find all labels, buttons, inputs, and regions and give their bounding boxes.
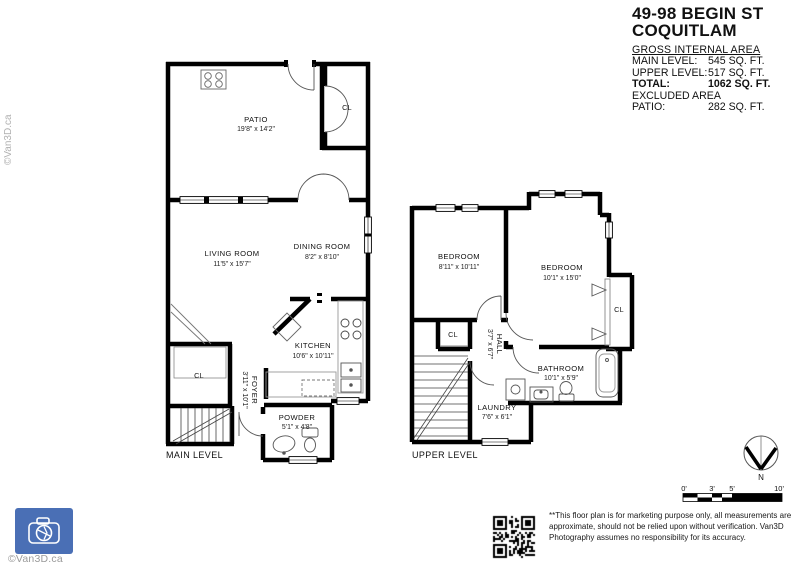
room-dims-bedroom-left: 8'11" x 10'11" (439, 264, 480, 271)
powder-fixtures (272, 428, 318, 454)
kitchen-sink-icon (341, 363, 361, 392)
qr-code (492, 515, 536, 559)
room-dims-patio: 19'8" x 14'2" (237, 126, 275, 133)
room-label-living: LIVING ROOM (204, 249, 259, 258)
room-label-hall-group: HALL 3'7" x 6'7" (486, 329, 504, 360)
room-label-laundry: LAUNDRY (478, 403, 517, 412)
bathtub-icon (596, 349, 618, 397)
room-label-bedroom-left: BEDROOM (438, 252, 480, 261)
upper-level-walls (412, 192, 632, 442)
camera-icon (25, 514, 63, 548)
room-label-hall-closet: CL (448, 330, 458, 339)
room-label-foyer-group: FOYER 3'11" x 10'1" (241, 371, 259, 409)
main-level-caption: MAIN LEVEL (166, 450, 223, 460)
van3d-logo (15, 508, 73, 554)
scale-tick-3: 3' (709, 484, 715, 493)
room-label-bathroom: BATHROOM (538, 364, 585, 373)
compass: N (744, 436, 778, 482)
stove-icon (341, 319, 361, 339)
room-dims-hall: 3'7" x 6'7" (486, 329, 493, 360)
floor-plan-page: ©Van3D.ca 49-98 BEGIN ST COQUITLAM GROSS… (0, 0, 800, 567)
washer-icon (506, 379, 525, 400)
room-label-powder: POWDER (279, 413, 316, 422)
room-label-dining: DINING ROOM (294, 242, 351, 251)
room-dims-foyer: 3'11" x 10'1" (241, 371, 248, 409)
scale-tick-0: 0' (681, 484, 687, 493)
compass-north-label: N (758, 473, 764, 482)
room-dims-dining: 8'2" x 8'10" (305, 254, 340, 261)
room-dims-laundry: 7'6" x 6'1" (482, 414, 513, 421)
disclaimer: **This floor plan is for marketing purpo… (549, 510, 794, 543)
vanity-sink-icon (530, 387, 553, 402)
disclaimer-line2: approximate, should not be relied upon w… (549, 521, 794, 532)
floor-plan-drawing: PATIO 19'8" x 14'2" CL LIVING ROOM 11'5"… (0, 0, 800, 567)
closet-hanger-marks (592, 284, 606, 340)
main-level-plan: PATIO 19'8" x 14'2" CL LIVING ROOM 11'5"… (166, 60, 371, 463)
upper-toilet-icon (559, 382, 574, 402)
kitchen-island (273, 313, 301, 341)
upper-level-caption: UPPER LEVEL (412, 450, 478, 460)
kitchen-counter-bottom (266, 372, 336, 397)
scale-bar-segments (683, 494, 782, 502)
powder-sink-icon (272, 434, 297, 454)
stairs-upper (414, 356, 470, 440)
room-dims-bathroom: 10'1" x 5'9" (544, 375, 579, 382)
room-label-bedroom-closet: CL (614, 305, 624, 314)
disclaimer-line1: **This floor plan is for marketing purpo… (549, 510, 794, 521)
scale-tick-10: 10' (774, 484, 784, 493)
scale-bar: 0' 3' 5' 10' (681, 484, 784, 502)
room-dims-bedroom-right: 10'1" x 15'0" (543, 275, 581, 282)
stairs-main (173, 408, 232, 444)
room-label-kitchen: KITCHEN (295, 341, 331, 350)
room-label-main-closet: CL (194, 371, 204, 380)
room-label-hall: HALL (495, 334, 504, 355)
upper-level-plan: BEDROOM 8'11" x 10'11" BEDROOM 10'1" x 1… (412, 191, 632, 460)
closet-slider (440, 279, 610, 346)
room-label-patio: PATIO (244, 115, 268, 124)
credit-text: ©Van3D.ca (8, 553, 63, 565)
grill-icon (201, 70, 226, 89)
room-label-foyer: FOYER (250, 376, 259, 404)
disclaimer-line3: Photography assumes no responsibility fo… (549, 532, 794, 543)
scale-tick-5: 5' (729, 484, 735, 493)
room-label-bedroom-right: BEDROOM (541, 263, 583, 272)
room-dims-powder: 5'1" x 4'8" (282, 424, 313, 431)
fireplace-corner (171, 304, 211, 344)
room-dims-kitchen: 10'6" x 10'11" (292, 353, 334, 360)
room-dims-living: 11'5" x 15'7" (213, 261, 251, 268)
kitchen-counter-right (338, 301, 363, 393)
room-label-patio-closet: CL (342, 103, 352, 112)
toilet-icon (302, 428, 318, 452)
main-door-jambs (284, 60, 322, 303)
